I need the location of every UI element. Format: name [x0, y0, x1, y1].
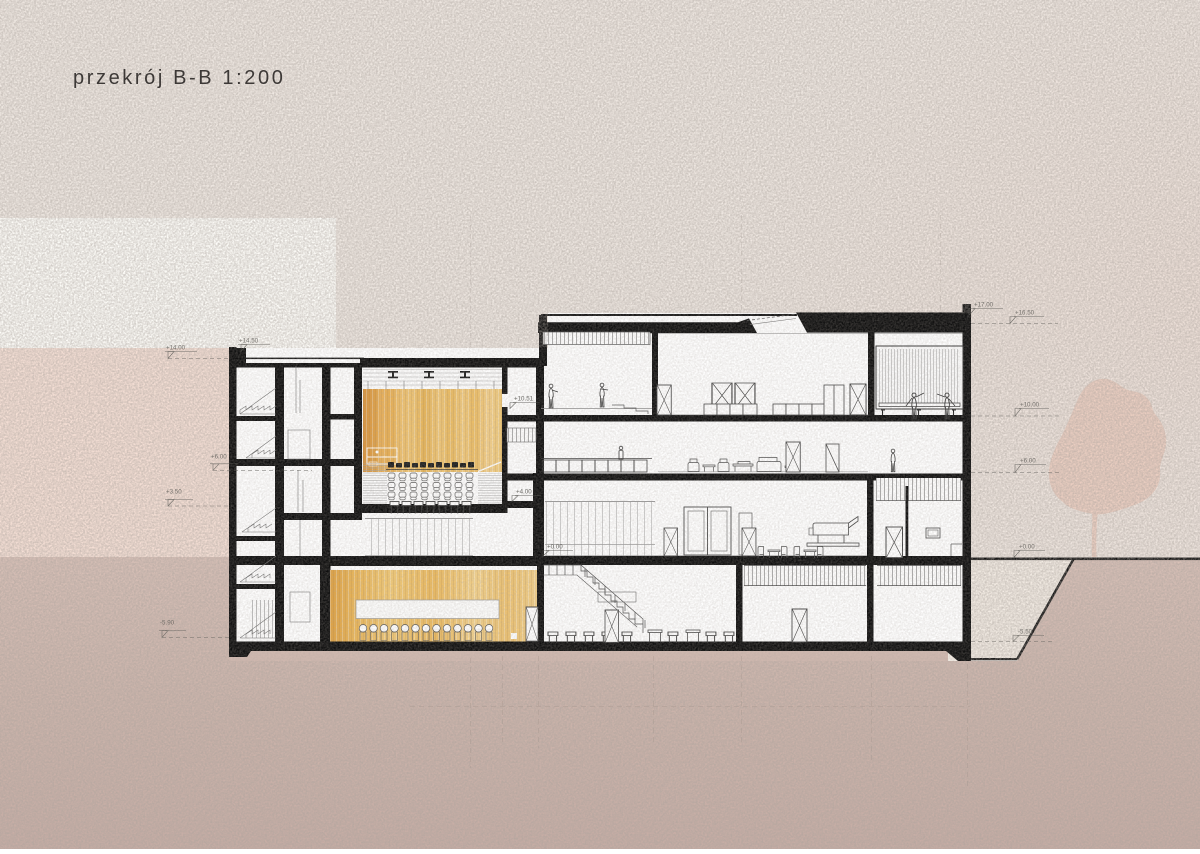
svg-text:przekrój B-B 1:200: przekrój B-B 1:200: [73, 67, 285, 89]
